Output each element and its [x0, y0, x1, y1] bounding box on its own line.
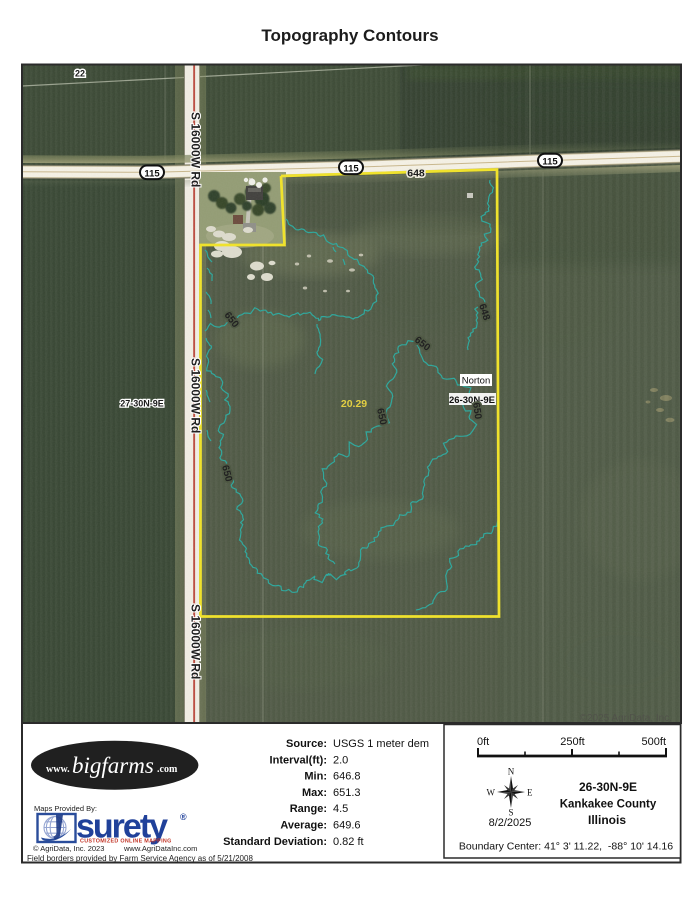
svg-text:0ft: 0ft: [477, 736, 489, 748]
svg-text:115: 115: [542, 157, 558, 168]
svg-text:S 16000W Rd: S 16000W Rd: [189, 604, 203, 679]
svg-text:Topography Contours: Topography Contours: [261, 26, 438, 45]
svg-text:250ft: 250ft: [560, 736, 584, 748]
svg-text:115: 115: [144, 168, 160, 179]
svg-text:Field borders provided by Farm: Field borders provided by Farm Service A…: [27, 854, 253, 863]
svg-text:E: E: [527, 788, 533, 798]
svg-text:651.3: 651.3: [333, 787, 361, 799]
svg-text:Max:: Max:: [302, 787, 327, 799]
svg-text:S 16000W Rd: S 16000W Rd: [189, 358, 203, 433]
svg-text:Source:: Source:: [286, 738, 327, 750]
svg-text:S 16000W Rd: S 16000W Rd: [189, 112, 203, 187]
svg-text:115: 115: [343, 163, 359, 174]
svg-text:646.8: 646.8: [333, 771, 361, 783]
svg-text:Min:: Min:: [304, 771, 327, 783]
svg-text:4.5: 4.5: [333, 803, 348, 815]
svg-text:Norton: Norton: [462, 376, 491, 387]
svg-text:www.AgriDataInc.com: www.AgriDataInc.com: [123, 844, 197, 853]
svg-text:27-30N-9E: 27-30N-9E: [120, 399, 164, 409]
svg-text:Range:: Range:: [290, 803, 327, 815]
svg-text:22: 22: [75, 69, 85, 79]
svg-text:Interval(ft):: Interval(ft):: [270, 754, 327, 766]
svg-text:Illinois: Illinois: [588, 813, 626, 827]
svg-text:20.29: 20.29: [341, 398, 367, 410]
svg-text:USGS 1 meter dem: USGS 1 meter dem: [333, 738, 429, 750]
svg-text:Kankakee County: Kankakee County: [560, 799, 657, 811]
svg-text:®: ®: [180, 812, 187, 822]
svg-text:www.: www.: [46, 764, 70, 775]
svg-text:W: W: [487, 788, 496, 798]
svg-text:500ft: 500ft: [642, 736, 666, 748]
svg-text:2.0: 2.0: [333, 754, 348, 766]
svg-text:Average:: Average:: [280, 820, 327, 832]
svg-text:.com: .com: [157, 764, 178, 775]
svg-text:© AgriData, Inc. 2023: © AgriData, Inc. 2023: [33, 844, 104, 853]
svg-text:bigfarms: bigfarms: [72, 753, 154, 778]
svg-text:S: S: [508, 808, 513, 818]
svg-text:Standard Deviation:: Standard Deviation:: [223, 836, 327, 848]
svg-text:N: N: [508, 767, 515, 777]
svg-text:8/2/2025: 8/2/2025: [489, 817, 532, 829]
svg-text:0.82 ft: 0.82 ft: [333, 836, 364, 848]
svg-text:Boundary Center: 41° 3' 11.22,: Boundary Center: 41° 3' 11.22, -88° 10' …: [459, 841, 673, 853]
svg-text:649.6: 649.6: [333, 820, 361, 832]
svg-text:26-30N-9E: 26-30N-9E: [579, 780, 637, 794]
svg-text:648: 648: [407, 168, 425, 180]
